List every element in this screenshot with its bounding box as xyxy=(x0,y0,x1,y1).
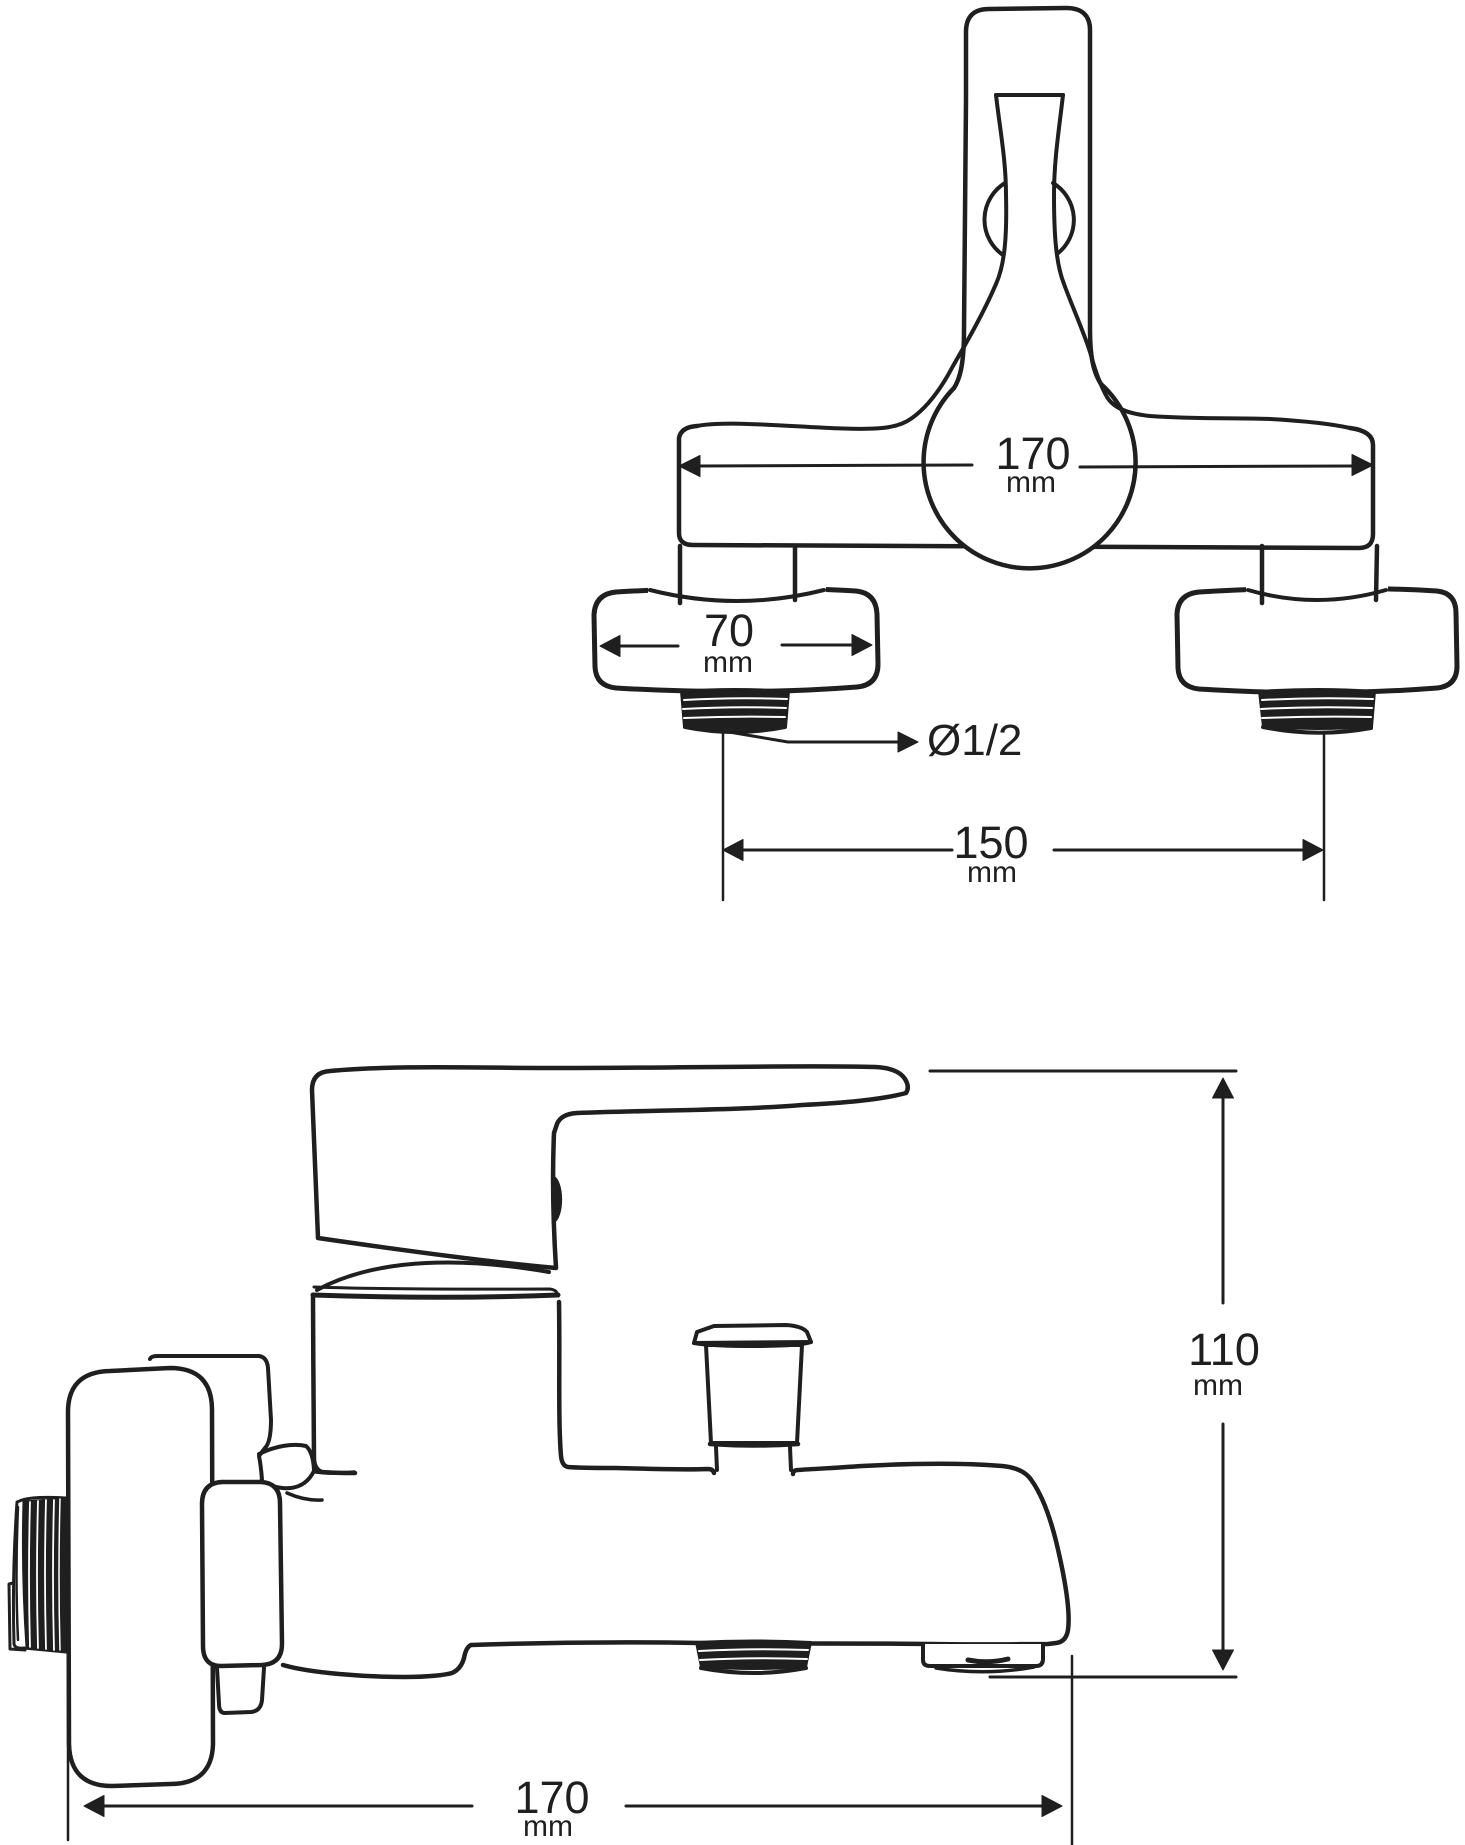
svg-text:mm: mm xyxy=(703,646,753,679)
svg-text:mm: mm xyxy=(1193,1369,1243,1402)
svg-text:mm: mm xyxy=(1006,466,1056,499)
svg-text:Ø1/2: Ø1/2 xyxy=(927,716,1022,765)
svg-text:mm: mm xyxy=(967,856,1017,889)
svg-text:110: 110 xyxy=(1188,1324,1260,1375)
svg-text:mm: mm xyxy=(523,1810,573,1843)
